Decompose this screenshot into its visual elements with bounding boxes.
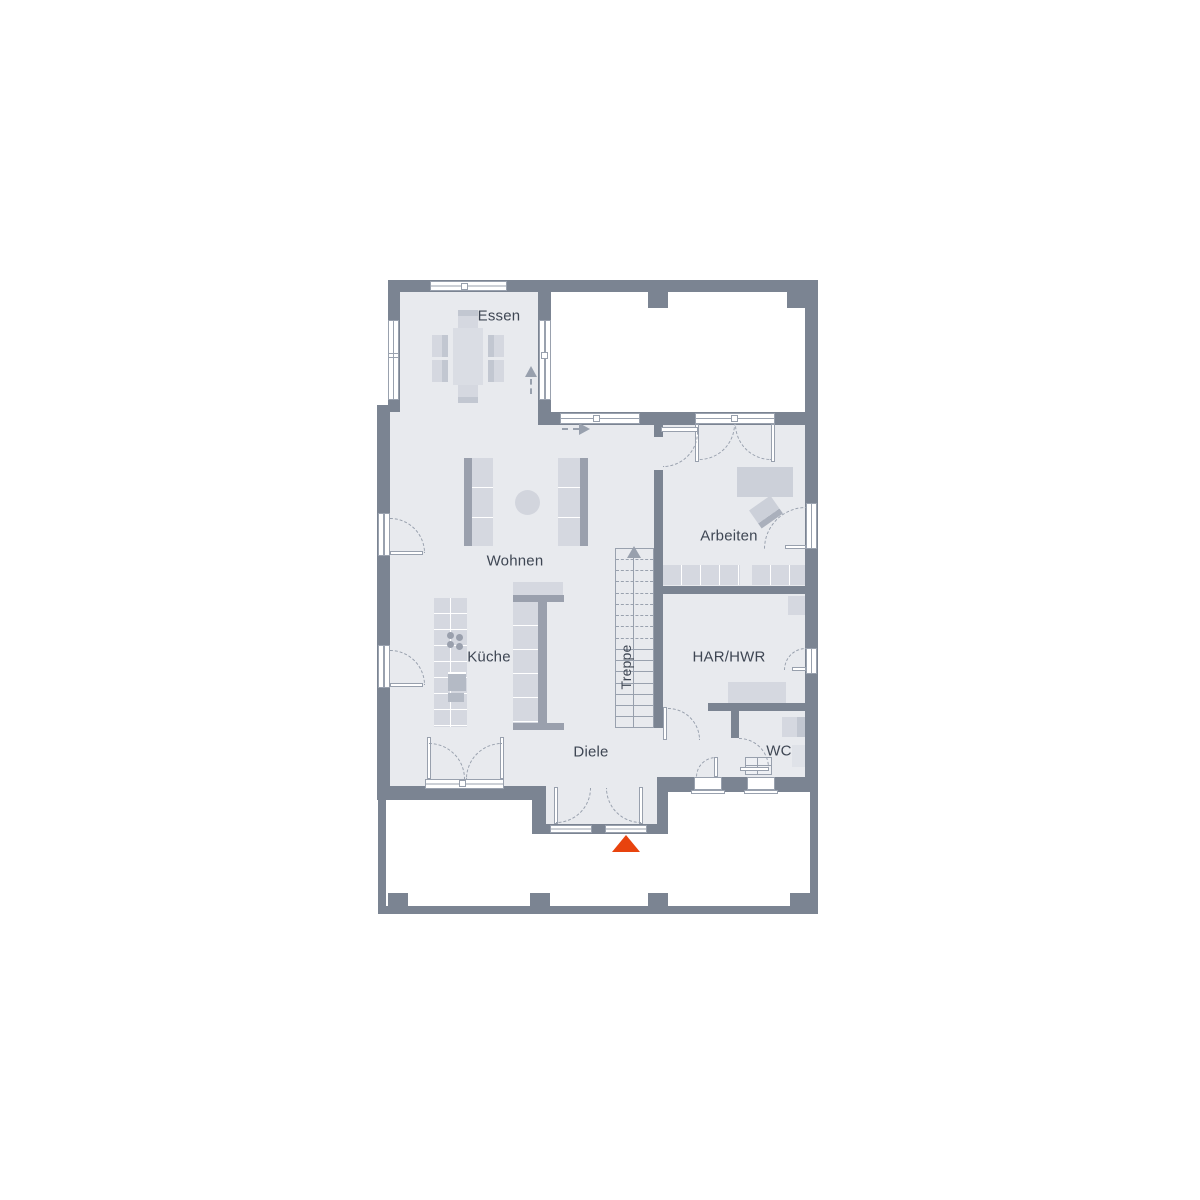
toilet <box>792 745 805 767</box>
stair-tread <box>616 705 653 706</box>
pillar <box>648 292 668 308</box>
stair-up-arrow-icon <box>627 546 641 558</box>
stair-tread <box>616 638 653 639</box>
circulation-arrow-dash <box>562 428 579 430</box>
stair-tread <box>616 626 653 627</box>
sideboard <box>663 565 740 585</box>
stair-tread <box>616 570 653 571</box>
window-marker <box>459 780 466 787</box>
cooktop-burner <box>447 632 454 639</box>
cooktop-burner <box>456 643 463 650</box>
door-leaf <box>663 707 667 740</box>
stair-tread <box>616 593 653 594</box>
window-marker <box>593 415 600 422</box>
window <box>694 777 722 790</box>
window-marker <box>541 352 548 359</box>
entrance-marker-icon <box>612 835 640 852</box>
stair-tread <box>616 716 653 717</box>
sofa-backrest <box>464 458 472 546</box>
coffee-table <box>515 490 540 515</box>
window-marker <box>461 283 468 290</box>
room-label-diele: Diele <box>573 744 608 761</box>
wall <box>657 777 818 792</box>
dining-chair <box>432 360 448 382</box>
room-label-wohnen: Wohnen <box>487 553 544 570</box>
dining-table <box>453 328 483 385</box>
pillar <box>648 893 668 913</box>
utility-counter <box>728 682 786 703</box>
window-sill <box>691 790 725 794</box>
room-label-treppe: Treppe <box>618 644 634 689</box>
dining-chair <box>458 385 478 403</box>
stair-tread <box>616 581 653 582</box>
door-leaf <box>771 424 775 462</box>
stair-tread <box>616 694 653 695</box>
pillar <box>787 292 805 308</box>
oven <box>448 672 466 691</box>
kitchen-partition-cap <box>513 723 564 730</box>
window-marker <box>731 415 738 422</box>
door-leaf <box>390 683 423 687</box>
window <box>539 320 551 400</box>
window <box>560 413 640 424</box>
circulation-arrow-right-icon <box>579 423 590 435</box>
window <box>747 777 775 790</box>
terrace-wall-right <box>810 790 818 914</box>
wall <box>663 586 818 594</box>
window <box>550 825 592 833</box>
pillar <box>530 893 550 913</box>
stair-tread <box>616 604 653 605</box>
stair-direction-line <box>633 556 634 728</box>
terrace-wall-left <box>378 800 386 914</box>
window <box>378 645 390 688</box>
sofa-backrest <box>580 458 588 546</box>
sideboard <box>752 565 812 585</box>
wall <box>377 405 390 800</box>
cooktop-burner <box>447 641 454 648</box>
kitchen-counter-divider <box>450 598 451 727</box>
window <box>430 281 507 291</box>
kitchen-partition <box>538 602 547 723</box>
kitchen-island-top <box>513 582 563 595</box>
stair-tread <box>616 559 653 560</box>
dining-chair <box>488 360 504 382</box>
window <box>388 320 399 400</box>
sofa <box>558 458 580 546</box>
window <box>378 513 390 556</box>
room-label-kueche: Küche <box>467 649 511 666</box>
appliance <box>448 693 464 702</box>
room-label-har-hwr: HAR/HWR <box>692 649 765 666</box>
dining-chair <box>488 335 504 357</box>
window <box>605 825 647 833</box>
room-label-arbeiten: Arbeiten <box>700 528 757 545</box>
cabinet <box>782 717 805 737</box>
circulation-arrow-up-icon <box>525 366 537 377</box>
terrace-wall-bottom <box>378 906 818 914</box>
room-label-essen: Essen <box>478 308 521 325</box>
floor-plan: Essen Wohnen Küche Arbeiten HAR/HWR WC D… <box>0 0 1200 1200</box>
window <box>806 648 817 674</box>
desk <box>737 467 793 497</box>
circulation-arrow-dash <box>530 379 532 394</box>
dining-chair <box>458 310 478 328</box>
kitchen-partition-cap <box>513 595 564 602</box>
stair-tread <box>616 615 653 616</box>
window <box>806 503 817 549</box>
wall <box>654 470 663 728</box>
window-marker <box>388 357 399 358</box>
door-leaf <box>390 551 423 555</box>
kitchen-island <box>513 602 538 723</box>
wall <box>731 711 739 738</box>
room-label-wc: WC <box>766 743 791 760</box>
window-marker <box>388 353 399 354</box>
window-sill <box>744 790 778 794</box>
pillar <box>790 893 810 913</box>
pillar <box>388 893 408 913</box>
wall <box>708 703 806 711</box>
cooktop-burner <box>456 634 463 641</box>
dining-chair <box>432 335 448 357</box>
sofa <box>472 458 493 546</box>
